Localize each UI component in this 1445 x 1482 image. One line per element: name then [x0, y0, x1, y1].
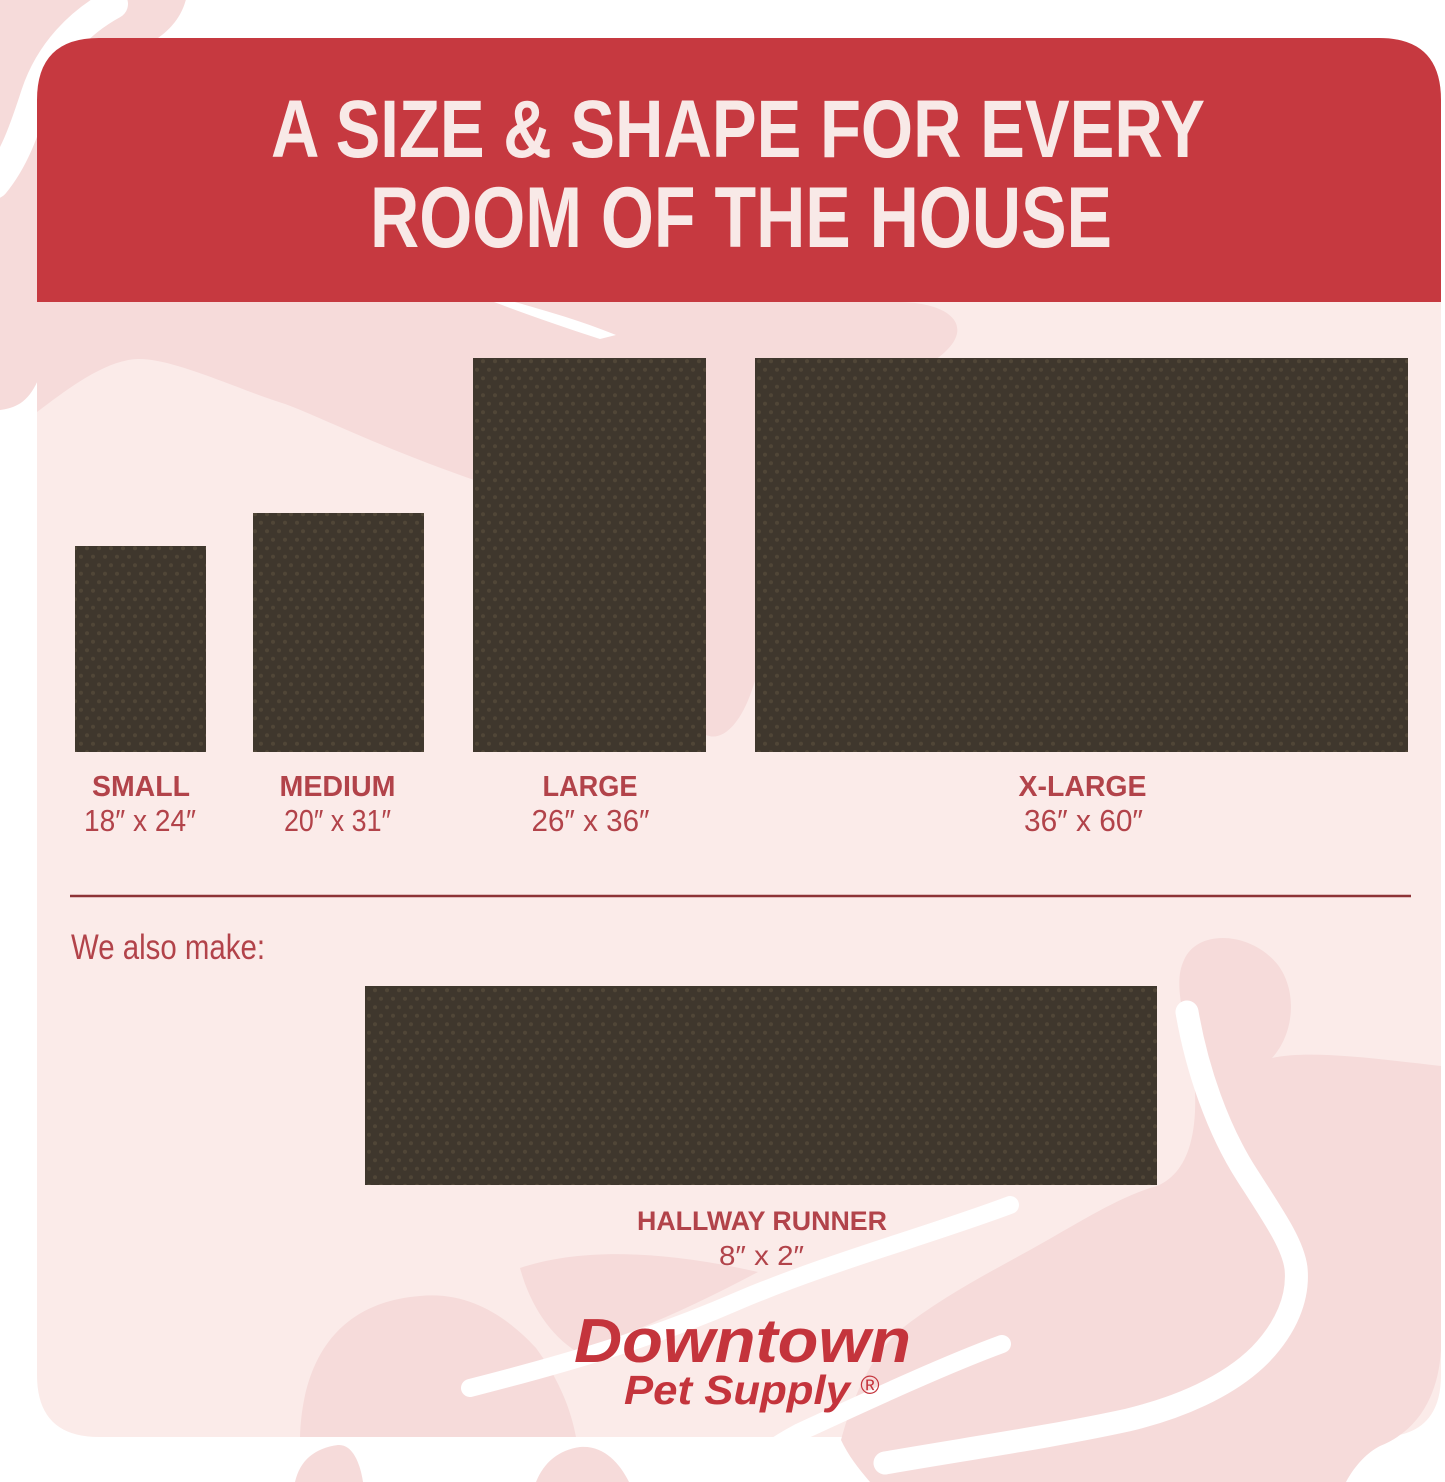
- svg-text:Downtown: Downtown: [574, 1307, 911, 1376]
- svg-text:18″ x 24″: 18″ x 24″: [84, 803, 196, 838]
- svg-text:®: ®: [860, 1370, 879, 1400]
- svg-text:ROOM OF THE HOUSE: ROOM OF THE HOUSE: [370, 170, 1112, 266]
- svg-text:X-LARGE: X-LARGE: [1019, 771, 1147, 803]
- svg-text:MEDIUM: MEDIUM: [280, 771, 396, 803]
- svg-text:We also make:: We also make:: [71, 928, 265, 967]
- svg-text:LARGE: LARGE: [543, 771, 638, 803]
- svg-text:26″ x 36″: 26″ x 36″: [532, 803, 650, 838]
- svg-text:Pet Supply: Pet Supply: [624, 1367, 852, 1413]
- svg-text:8″ x 2″: 8″ x 2″: [719, 1240, 804, 1271]
- svg-text:36″ x 60″: 36″ x 60″: [1024, 803, 1143, 838]
- svg-text:A SIZE & SHAPE FOR EVERY: A SIZE & SHAPE FOR EVERY: [271, 84, 1205, 175]
- svg-text:HALLWAY RUNNER: HALLWAY RUNNER: [637, 1206, 887, 1236]
- svg-text:20″ x 31″: 20″ x 31″: [284, 803, 391, 838]
- svg-text:SMALL: SMALL: [92, 771, 190, 803]
